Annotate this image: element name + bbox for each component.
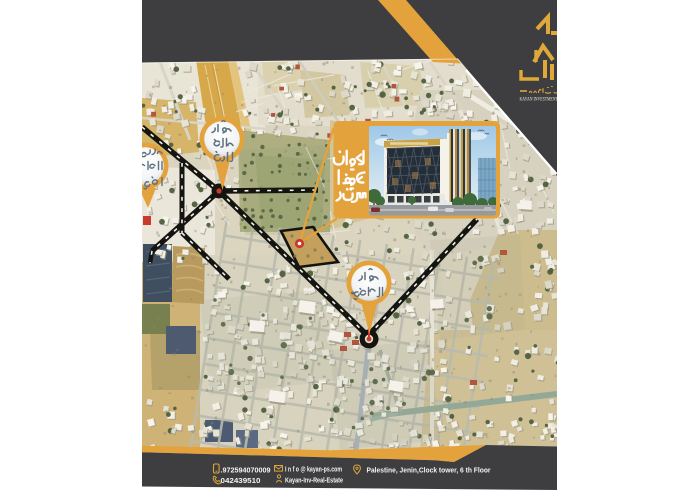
svg-text:I n f o @ kayan-ps.com: I n f o @ kayan-ps.com [285, 467, 342, 474]
svg-text:042439510: 042439510 [221, 476, 261, 485]
svg-text:Kayan-Inv-Real-Estate: Kayan-Inv-Real-Estate [285, 478, 343, 485]
svg-text:Palestine, Jenin,Clock tower,: Palestine, Jenin,Clock tower, 6 th Floor [367, 466, 491, 475]
svg-text:.972594070009: .972594070009 [221, 466, 271, 475]
svg-text:KAYAN INVESTMENT G: KAYAN INVESTMENT G [520, 97, 562, 103]
